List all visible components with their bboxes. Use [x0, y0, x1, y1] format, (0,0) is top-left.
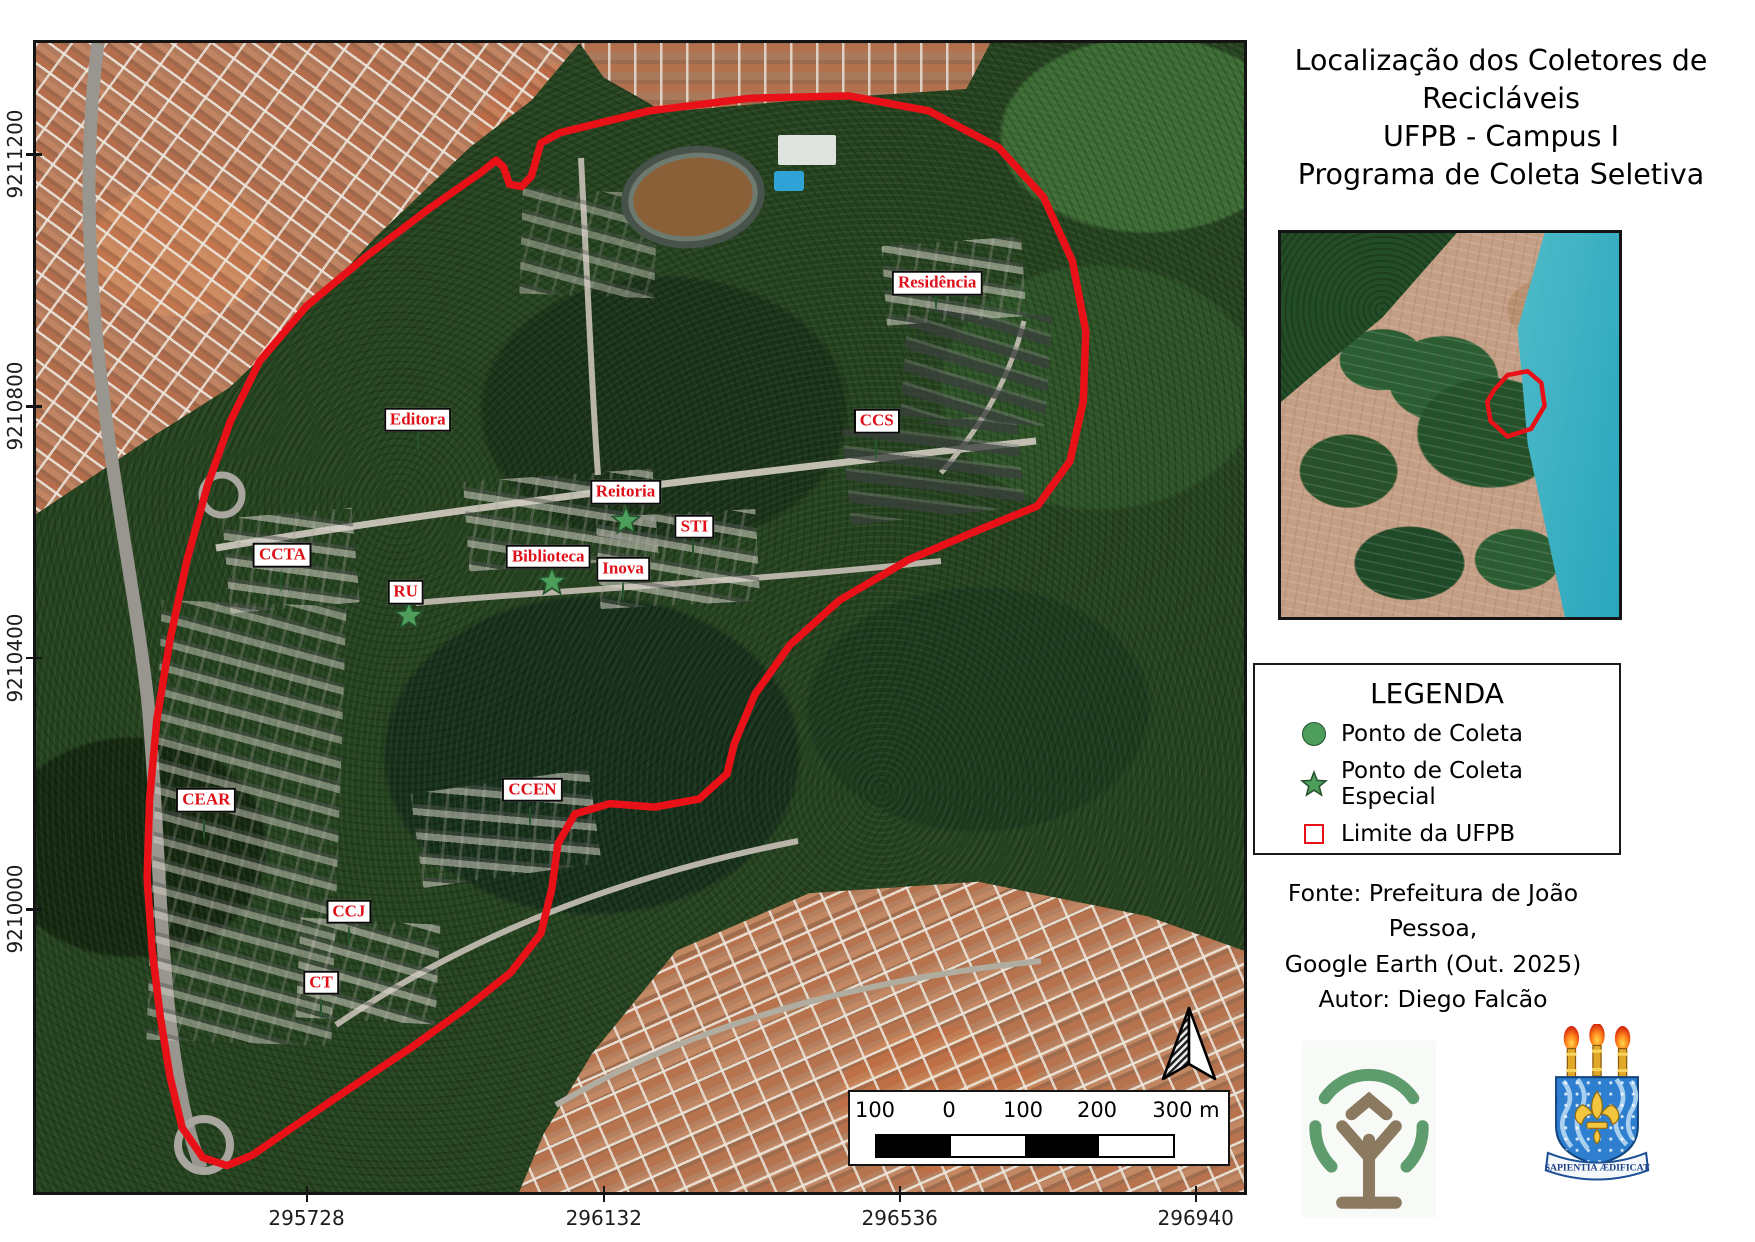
- inset-overview-map: [1278, 230, 1622, 620]
- y-axis-tick: [26, 908, 42, 911]
- y-axis-label: 9211200: [3, 110, 27, 199]
- scale-bar-label: 100: [1003, 1098, 1043, 1122]
- point-label: Biblioteca: [506, 544, 591, 569]
- scale-bar-label: 200: [1077, 1098, 1117, 1122]
- point-label: CCTA: [253, 543, 312, 568]
- collection-point-marker: [203, 819, 205, 838]
- collection-point-marker: [348, 926, 350, 945]
- source-line1: Fonte: Prefeitura de João Pessoa,: [1249, 876, 1617, 947]
- point-label: CEAR: [176, 788, 236, 813]
- collection-point-marker: [692, 539, 694, 558]
- legend-item-label: Ponto de Coleta Especial: [1341, 758, 1619, 810]
- special-point-star-marker: [610, 504, 642, 536]
- x-axis-tick: [1195, 1186, 1198, 1202]
- north-arrow-icon: [1158, 1005, 1220, 1085]
- collection-point-marker: [280, 571, 282, 590]
- x-axis-tick: [306, 1186, 309, 1202]
- x-axis-label: 296536: [862, 1206, 938, 1230]
- x-axis-tick: [603, 1186, 606, 1202]
- legend-item-limite: Limite da UFPB: [1299, 821, 1619, 847]
- map-title-line1: Localização dos Coletores de Recicláveis: [1262, 42, 1740, 118]
- point-label: STI: [675, 514, 714, 539]
- point-label: RU: [387, 580, 424, 605]
- special-point-star-icon: [1299, 770, 1329, 798]
- collection-point-marker: [320, 999, 322, 1018]
- x-axis-label: 296940: [1157, 1206, 1233, 1230]
- y-axis-label: 9210000: [3, 865, 27, 954]
- scale-bar-segments: [875, 1134, 1175, 1158]
- legend-item-label: Limite da UFPB: [1341, 821, 1515, 847]
- y-axis-tick: [26, 405, 42, 408]
- collection-points-layer: ResidênciaEditoraCCSReitoriaSTICCTABibli…: [36, 43, 1244, 1192]
- scale-bar: 1000100200300 m: [848, 1090, 1230, 1166]
- legend-item-ponto-especial: Ponto de Coleta Especial: [1299, 758, 1619, 810]
- source-line3: Autor: Diego Falcão: [1249, 982, 1617, 1017]
- special-point-star-marker: [536, 565, 568, 597]
- legend: LEGENDA Ponto de Coleta Ponto de Coleta …: [1253, 663, 1621, 855]
- x-axis: 295728296132296536296940: [36, 1192, 1244, 1240]
- y-axis-label: 9210800: [3, 362, 27, 451]
- ufpb-crest-logo: SAPIENTIA ÆDIFICAT: [1540, 1024, 1654, 1200]
- scale-bar-label: 300 m: [1152, 1098, 1219, 1122]
- y-axis-label: 9210400: [3, 613, 27, 702]
- map-title-line3: Programa de Coleta Seletiva: [1262, 156, 1740, 194]
- x-axis-label: 295728: [268, 1206, 344, 1230]
- y-axis-tick: [26, 153, 42, 156]
- point-label: Editora: [384, 408, 452, 433]
- crest-motto: SAPIENTIA ÆDIFICAT: [1545, 1162, 1650, 1173]
- map-title-line2: UFPB - Campus I: [1262, 118, 1740, 156]
- legend-heading: LEGENDA: [1255, 677, 1619, 710]
- collection-point-icon: [1299, 722, 1329, 746]
- map-title: Localização dos Coletores de Recicláveis…: [1262, 42, 1740, 194]
- collection-point-marker: [529, 807, 531, 826]
- point-label: CCJ: [326, 899, 371, 924]
- legend-item-ponto-de-coleta: Ponto de Coleta: [1299, 721, 1619, 747]
- scale-bar-label: 0: [942, 1098, 955, 1122]
- source-credits: Fonte: Prefeitura de João Pessoa, Google…: [1249, 876, 1617, 1017]
- inset-campus-outline: [1281, 233, 1619, 617]
- legend-item-label: Ponto de Coleta: [1341, 721, 1523, 747]
- collection-point-marker: [417, 431, 419, 450]
- point-label: Reitoria: [590, 480, 661, 505]
- point-label: Residência: [892, 271, 982, 296]
- crest-torches: [1564, 1024, 1631, 1077]
- collection-point-marker: [875, 439, 877, 458]
- point-label: CCEN: [502, 778, 562, 803]
- point-label: Inova: [596, 557, 650, 582]
- scale-bar-label: 100: [855, 1098, 895, 1122]
- x-axis-label: 296132: [566, 1206, 642, 1230]
- y-axis: 9211200921080092104009210000: [0, 43, 33, 1192]
- source-line2: Google Earth (Out. 2025): [1249, 947, 1617, 982]
- x-axis-tick: [899, 1186, 902, 1202]
- boundary-square-icon: [1299, 824, 1329, 844]
- y-axis-tick: [26, 657, 42, 660]
- coleta-seletiva-tree-logo: [1302, 1040, 1436, 1218]
- collection-point-marker: [622, 582, 624, 601]
- point-label: CT: [303, 971, 339, 996]
- point-label: CCS: [854, 409, 900, 434]
- main-map: ResidênciaEditoraCCSReitoriaSTICCTABibli…: [33, 40, 1247, 1195]
